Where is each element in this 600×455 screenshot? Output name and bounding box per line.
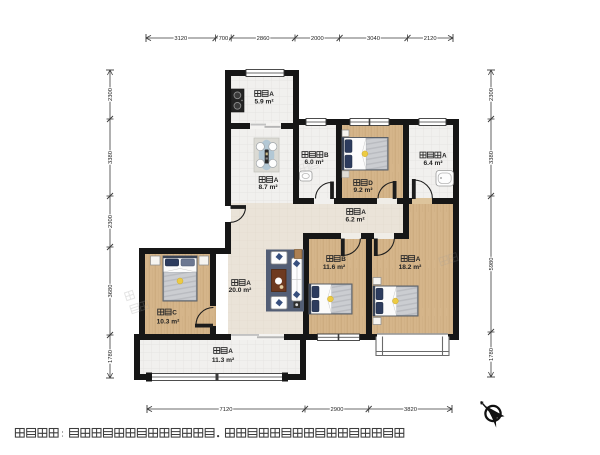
svg-text:A: A — [269, 91, 274, 98]
svg-text:2120: 2120 — [424, 36, 437, 42]
svg-text:8.7 m²: 8.7 m² — [258, 184, 278, 191]
svg-text:3380: 3380 — [108, 151, 114, 164]
svg-text:2300: 2300 — [489, 88, 495, 101]
svg-text:C: C — [172, 310, 177, 317]
svg-text:2300: 2300 — [108, 88, 114, 101]
svg-text:3040: 3040 — [367, 36, 380, 42]
svg-text:2000: 2000 — [311, 36, 324, 42]
svg-text:9.2 m²: 9.2 m² — [353, 187, 373, 194]
svg-text:18.2 m²: 18.2 m² — [399, 264, 423, 271]
svg-text:3680: 3680 — [108, 285, 114, 298]
svg-text:3380: 3380 — [489, 151, 495, 164]
svg-text:2860: 2860 — [257, 36, 270, 42]
svg-text:20.0 m²: 20.0 m² — [229, 287, 253, 294]
svg-text:1780: 1780 — [108, 350, 114, 363]
svg-text:5.9 m²: 5.9 m² — [254, 99, 274, 106]
svg-text:B: B — [341, 256, 346, 263]
svg-text:A: A — [274, 177, 279, 184]
svg-text:10.3 m²: 10.3 m² — [157, 319, 181, 326]
svg-text:700: 700 — [219, 36, 229, 42]
svg-text::: : — [61, 428, 64, 439]
svg-text:6.2 m²: 6.2 m² — [345, 217, 365, 224]
svg-text:A: A — [246, 280, 251, 287]
svg-text:3120: 3120 — [174, 36, 187, 42]
svg-text:A: A — [228, 348, 233, 355]
svg-text:11.6 m²: 11.6 m² — [323, 264, 346, 271]
svg-text:6.4 m²: 6.4 m² — [423, 160, 443, 167]
svg-text:7120: 7120 — [220, 407, 233, 413]
svg-text:1780: 1780 — [489, 348, 495, 361]
svg-text:D: D — [368, 180, 373, 187]
svg-text:3820: 3820 — [404, 407, 417, 413]
svg-text:2900: 2900 — [331, 407, 344, 413]
svg-text:A: A — [416, 256, 421, 263]
svg-text:5980: 5980 — [489, 258, 495, 271]
svg-text:2300: 2300 — [108, 215, 114, 228]
svg-text:B: B — [324, 152, 329, 159]
svg-text:A: A — [442, 153, 447, 160]
svg-text:11.3 m²: 11.3 m² — [212, 357, 235, 364]
svg-text:A: A — [361, 209, 366, 216]
